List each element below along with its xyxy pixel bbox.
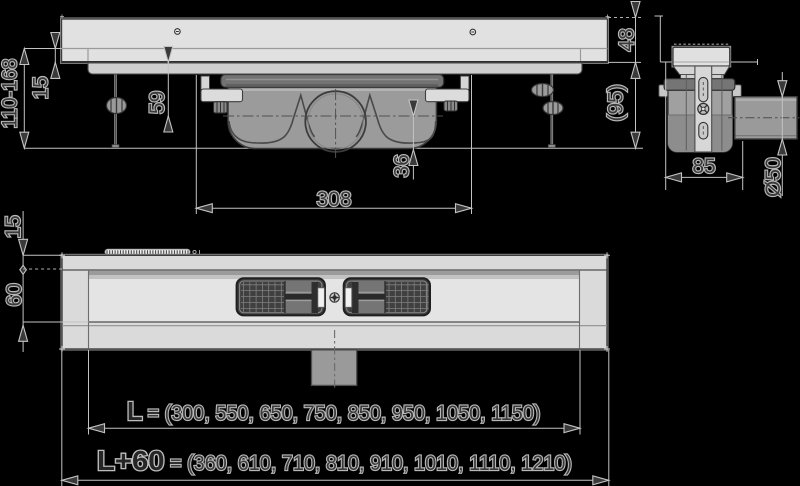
svg-text:= (300, 550, 650, 750, 850, 95: = (300, 550, 650, 750, 850, 950, 1050, 1… xyxy=(148,402,541,425)
svg-text:48: 48 xyxy=(616,28,639,51)
svg-text:L: L xyxy=(127,398,143,426)
svg-text:= (360, 610, 710, 810, 910, 10: = (360, 610, 710, 810, 910, 1010, 1110, … xyxy=(170,452,572,475)
svg-text:L+60: L+60 xyxy=(97,445,165,476)
svg-text:308: 308 xyxy=(316,188,351,211)
svg-text:15: 15 xyxy=(30,76,53,99)
svg-text:36: 36 xyxy=(391,154,414,177)
svg-text:110-168: 110-168 xyxy=(0,59,22,129)
svg-text:(95): (95) xyxy=(605,84,628,121)
svg-text:Ø50: Ø50 xyxy=(762,157,785,197)
svg-text:59: 59 xyxy=(146,91,169,114)
svg-text:85: 85 xyxy=(692,155,715,178)
svg-text:60: 60 xyxy=(3,283,26,306)
svg-text:15: 15 xyxy=(2,215,25,238)
